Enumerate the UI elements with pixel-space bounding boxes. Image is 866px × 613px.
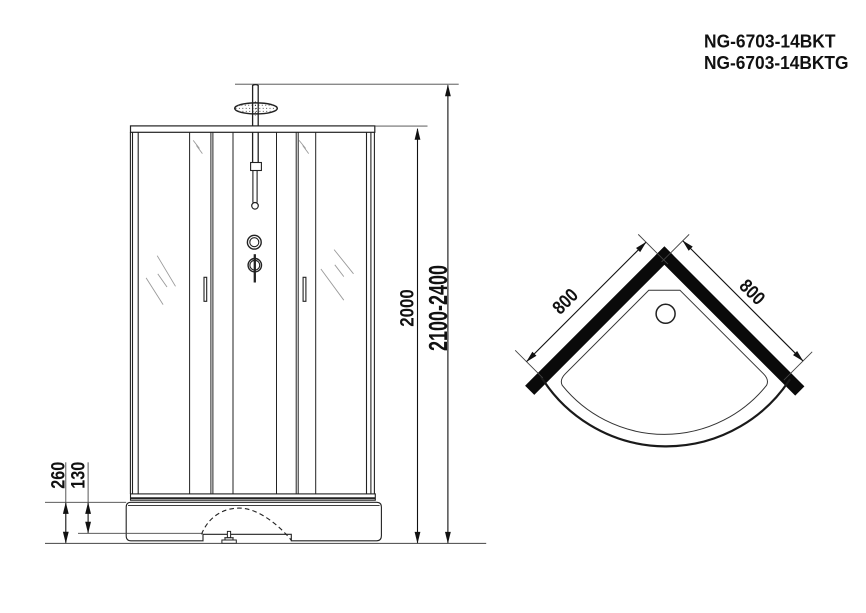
svg-text:NG-6703-14BKT: NG-6703-14BKT bbox=[704, 31, 836, 52]
svg-text:2000: 2000 bbox=[398, 289, 419, 327]
svg-text:130: 130 bbox=[69, 462, 90, 489]
svg-text:NG-6703-14BKTG: NG-6703-14BKTG bbox=[704, 52, 849, 73]
svg-text:800: 800 bbox=[549, 285, 583, 319]
svg-text:2100-2400: 2100-2400 bbox=[423, 265, 453, 351]
svg-text:800: 800 bbox=[735, 276, 769, 310]
svg-text:260: 260 bbox=[49, 462, 70, 489]
